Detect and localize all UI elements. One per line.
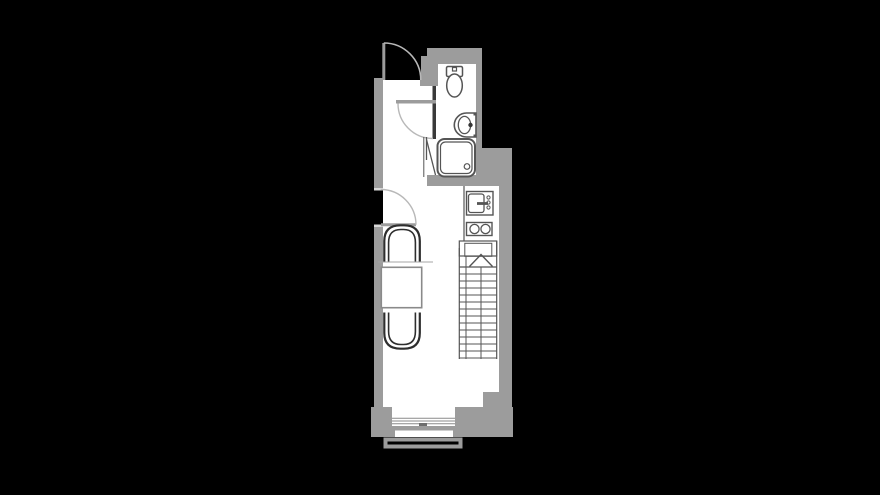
entry-threshold: [383, 80, 421, 87]
right-wall: [499, 148, 512, 437]
window-assembly: [386, 407, 461, 447]
kitchen-fixtures: [464, 186, 493, 243]
right-wall-jog: [476, 148, 499, 175]
bathroom-door-wall: [396, 100, 436, 104]
armchair-upper: [384, 225, 420, 261]
toilet: [447, 67, 463, 98]
kitchen-sink: [467, 192, 494, 216]
window-center-mark: [419, 423, 427, 427]
toilet-flush-button: [453, 68, 457, 72]
window-sill-wall: [392, 426, 455, 431]
toilet-bowl: [447, 74, 463, 97]
shower-tray: [438, 139, 476, 177]
window-outer-sill: [395, 431, 453, 438]
dining-table: [381, 267, 421, 307]
armchair-lower: [384, 313, 420, 349]
washbasin-mount-top: [474, 113, 477, 116]
armchair-upper-outer: [384, 225, 420, 261]
wall-step: [483, 392, 499, 407]
floor-plan: [0, 0, 880, 495]
washbasin-mount-bottom: [474, 135, 477, 138]
armchair-lower-outer: [384, 313, 420, 349]
left-wall-lower: [374, 227, 383, 407]
left-wall-upper: [374, 78, 383, 188]
washbasin-faucet-dot: [468, 123, 472, 127]
washbasin: [454, 113, 476, 138]
hall-bathroom-partition: [433, 86, 437, 139]
cooktop: [467, 223, 493, 236]
floor-plan-canvas: [0, 0, 880, 495]
